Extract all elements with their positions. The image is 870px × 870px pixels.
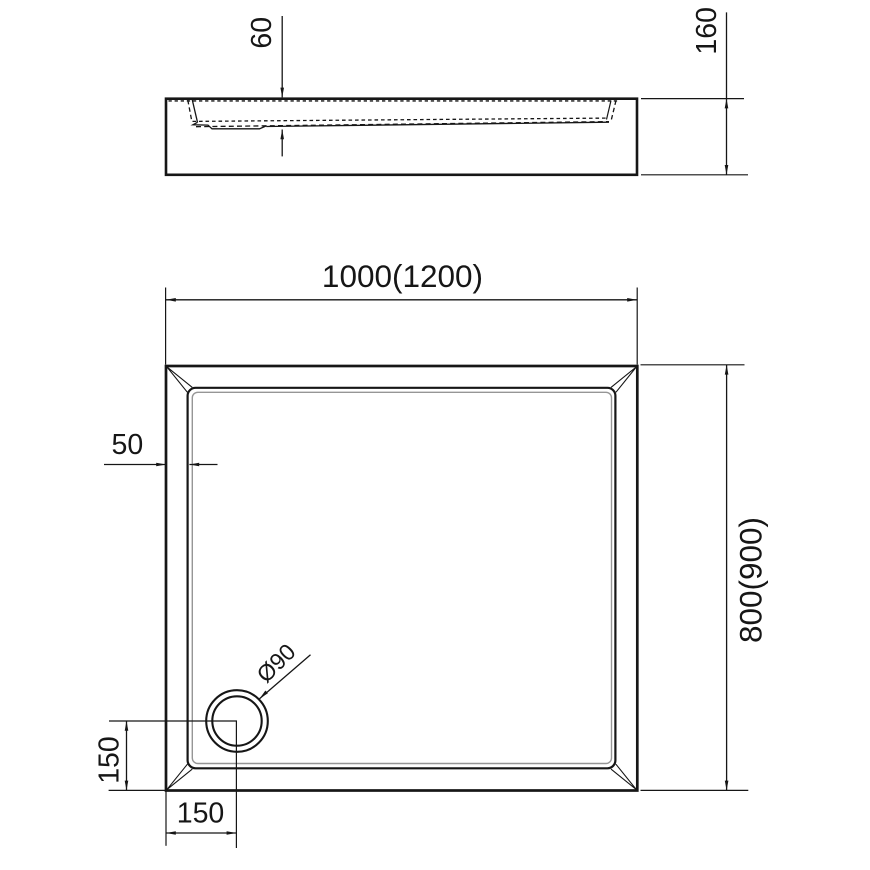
- svg-text:60: 60: [246, 17, 278, 49]
- svg-text:150: 150: [93, 736, 125, 784]
- svg-text:800(900): 800(900): [733, 517, 769, 643]
- svg-text:150: 150: [177, 798, 225, 830]
- svg-text:50: 50: [112, 429, 144, 461]
- svg-text:1000(1200): 1000(1200): [322, 258, 483, 294]
- svg-text:160: 160: [691, 7, 723, 55]
